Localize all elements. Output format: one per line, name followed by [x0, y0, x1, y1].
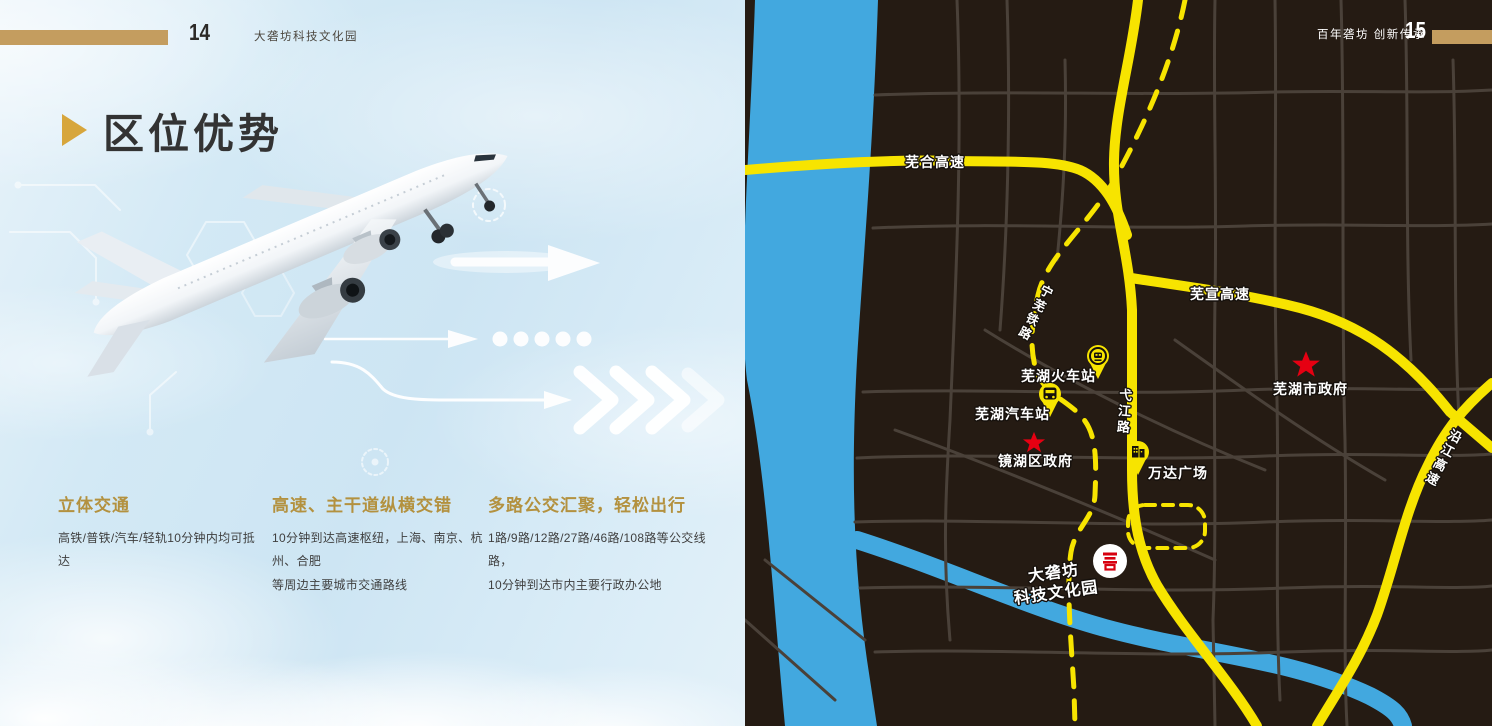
curved-arrow	[332, 362, 572, 409]
feature-column: 高速、主干道纵横交错 10分钟到达高速枢纽，上海、南京、杭州、合肥 等周边主要城…	[272, 491, 487, 597]
right-page-map: 百年砻坊 创新传承 15 芜合高速 芜宣高速 弋江路 沿江高速 宁芜铁路 芜湖火…	[745, 0, 1492, 726]
engine-near	[291, 267, 369, 326]
river	[745, 0, 878, 726]
brochure-spread: 14 大砻坊科技文化园 区位优势 立体交通 高铁/普铁/汽车/轻轨10分钟内均可…	[0, 0, 1492, 726]
target-circle-icon	[362, 449, 388, 475]
page-number: 14	[189, 19, 210, 46]
gold-header-bar	[0, 30, 168, 45]
stream	[857, 540, 1403, 726]
tail-fin	[77, 208, 184, 306]
wing-far	[241, 153, 357, 240]
feature-body: 高铁/普铁/汽车/轻轨10分钟内均可抵达	[58, 527, 263, 574]
radar-circle-icon	[473, 189, 505, 221]
yijiang-road	[1114, 0, 1257, 726]
landing-gear	[419, 180, 501, 246]
arrow-with-dots	[325, 330, 592, 348]
road-label-yijiang: 弋江路	[1112, 387, 1134, 436]
feature-heading: 立体交通	[58, 491, 263, 516]
hexagon-outline	[187, 222, 263, 288]
feature-column: 多路公交汇聚，轻松出行 1路/9路/12路/27路/46路/108路等公交线路，…	[488, 491, 718, 597]
arrow-right-top	[433, 245, 600, 281]
feature-body: 10分钟到达高速枢纽，上海、南京、杭州、合肥 等周边主要城市交通路线	[272, 527, 487, 597]
title-arrow-icon	[62, 114, 87, 146]
road-label-wuxuan: 芜宣高速	[1190, 284, 1250, 304]
hexagon-outline	[242, 270, 294, 316]
fuselage	[85, 136, 516, 350]
poi-label-jinghu-gov: 镜湖区政府	[998, 451, 1073, 471]
city-map	[745, 0, 1492, 726]
feature-column: 立体交通 高铁/普铁/汽车/轻轨10分钟内均可抵达	[58, 491, 263, 574]
cockpit-windows	[472, 148, 497, 167]
section-title-block: 区位优势	[62, 100, 283, 160]
feature-heading: 多路公交汇聚，轻松出行	[488, 491, 718, 516]
poi-label-wanda-plaza: 万达广场	[1148, 463, 1208, 483]
feature-heading: 高速、主干道纵横交错	[272, 491, 487, 516]
road-label-wuhe: 芜合高速	[905, 152, 965, 172]
engine-far	[338, 221, 405, 270]
book-title: 大砻坊科技文化园	[254, 28, 358, 44]
poi-label-bus-station: 芜湖汽车站	[975, 404, 1050, 424]
chevron-arrows	[580, 372, 718, 428]
page-number: 15	[1405, 17, 1426, 44]
left-page: 14 大砻坊科技文化园 区位优势 立体交通 高铁/普铁/汽车/轻轨10分钟内均可…	[0, 0, 745, 726]
stabilizer-near	[74, 314, 163, 382]
window-row	[178, 175, 445, 288]
feature-body: 1路/9路/12路/27路/46路/108路等公交线路， 10分钟到达市内主要行…	[488, 527, 718, 597]
stabilizer-far	[73, 262, 149, 318]
poi-label-city-gov: 芜湖市政府	[1273, 379, 1348, 399]
circuit-lines	[10, 182, 176, 436]
gold-header-bar	[1432, 30, 1492, 44]
section-title: 区位优势	[103, 100, 283, 160]
wing-near	[229, 210, 433, 373]
